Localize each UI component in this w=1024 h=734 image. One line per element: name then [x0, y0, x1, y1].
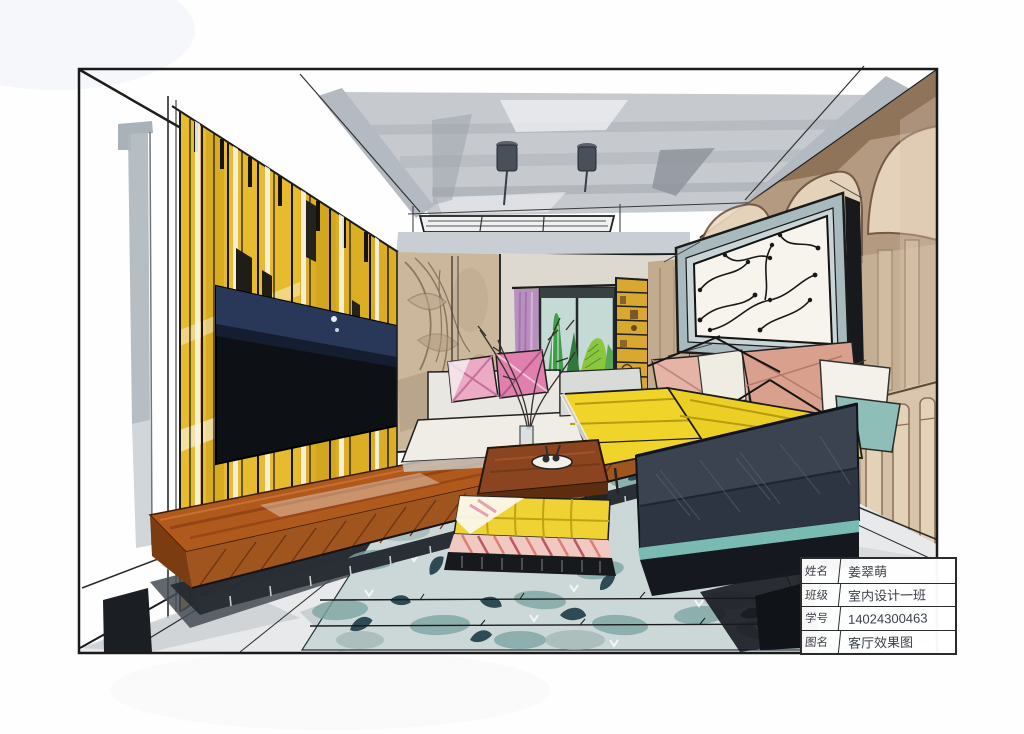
drawing-name-value: 客厅效果图	[840, 631, 955, 652]
title-block-row-student-id: 学号 14024300463	[802, 606, 955, 630]
class-value: 室内设计一班	[840, 584, 955, 605]
student-id-value: 14024300463	[840, 610, 955, 627]
paper-shading	[110, 650, 550, 730]
title-block-row-class: 班级 室内设计一班	[802, 583, 955, 607]
scanned-drawing-page: 姓名 姜翠萌 班级 室内设计一班 学号 14024300463 图名 客厅效果图	[0, 0, 1024, 734]
student-id-label: 学号	[801, 607, 841, 630]
ottoman	[444, 496, 616, 576]
title-block-row-drawing-name: 图名 客厅效果图	[802, 630, 955, 654]
title-block-row-name: 姓名 姜翠萌	[802, 559, 955, 583]
name-value: 姜翠萌	[840, 560, 955, 581]
name-label: 姓名	[801, 559, 841, 583]
pink-pillow	[448, 356, 498, 402]
class-label: 班级	[801, 584, 841, 607]
title-block: 姓名 姜翠萌 班级 室内设计一班 学号 14024300463 图名 客厅效果图	[800, 557, 957, 655]
soffit	[396, 232, 690, 256]
drawing-name-label: 图名	[801, 631, 841, 654]
pink-pillow	[496, 350, 548, 398]
window	[540, 288, 614, 378]
